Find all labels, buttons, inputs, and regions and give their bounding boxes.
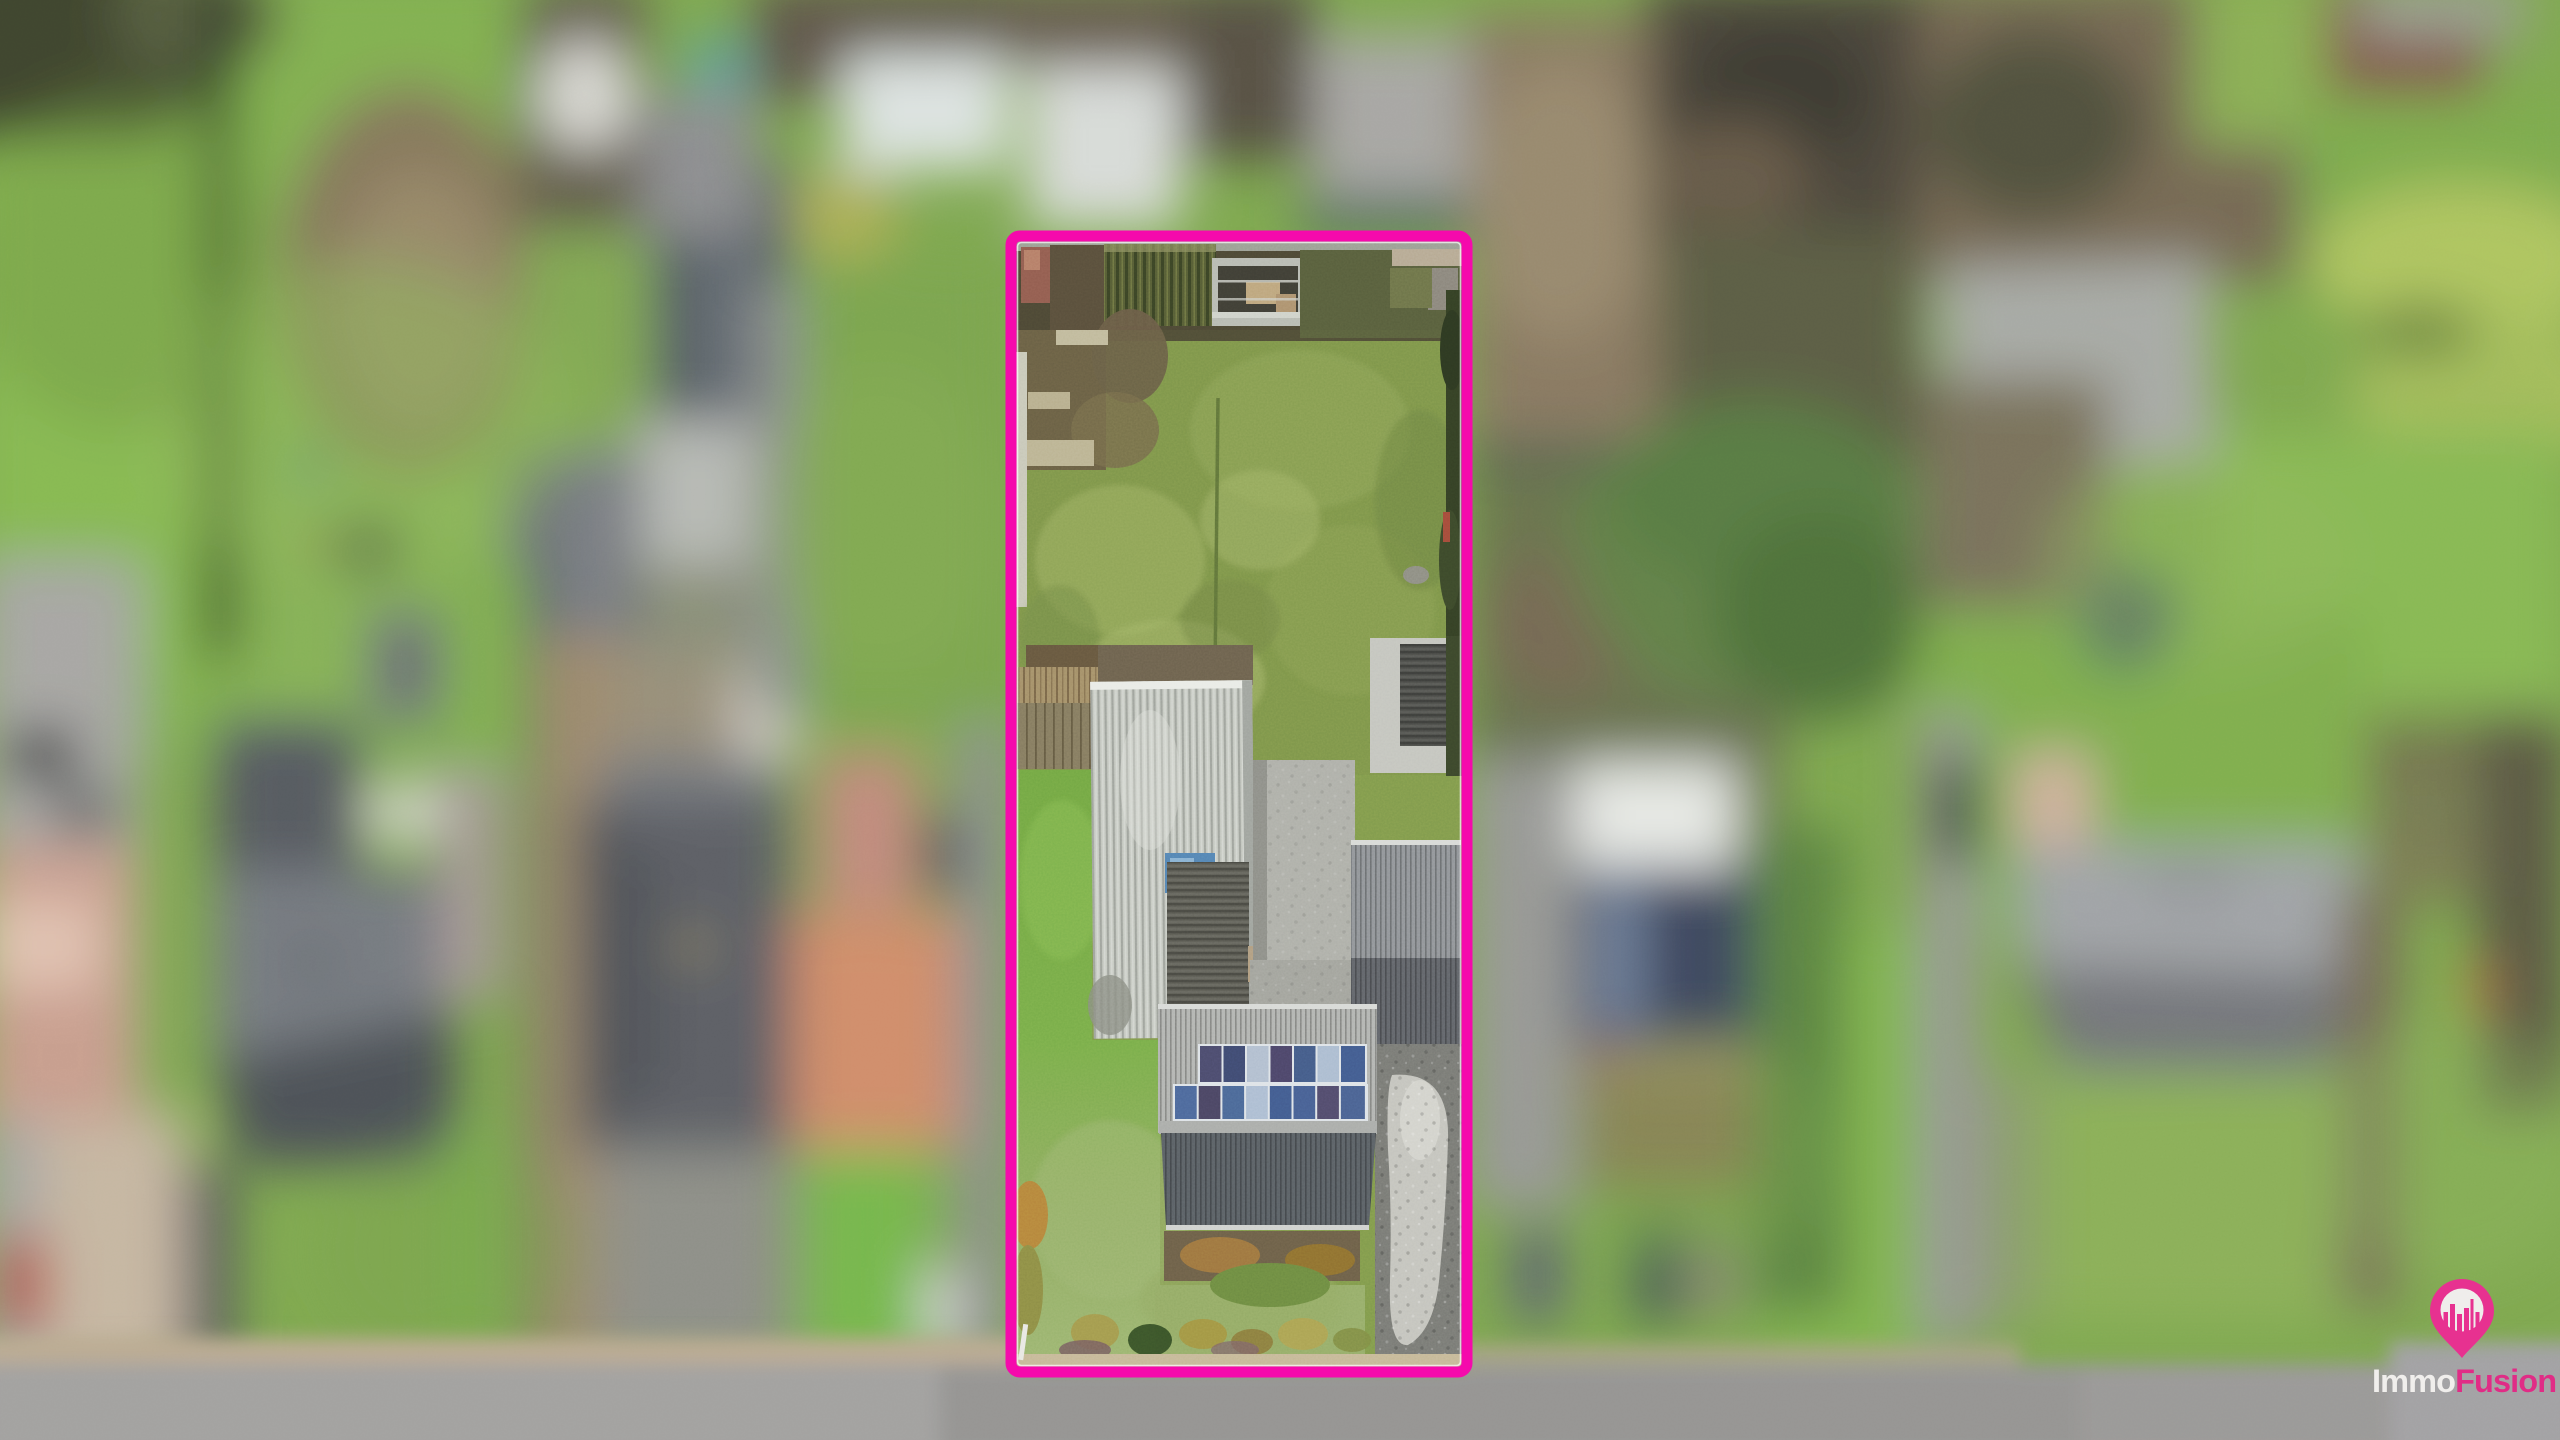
svg-text:ImmoFusion: ImmoFusion [2372, 1363, 2556, 1399]
